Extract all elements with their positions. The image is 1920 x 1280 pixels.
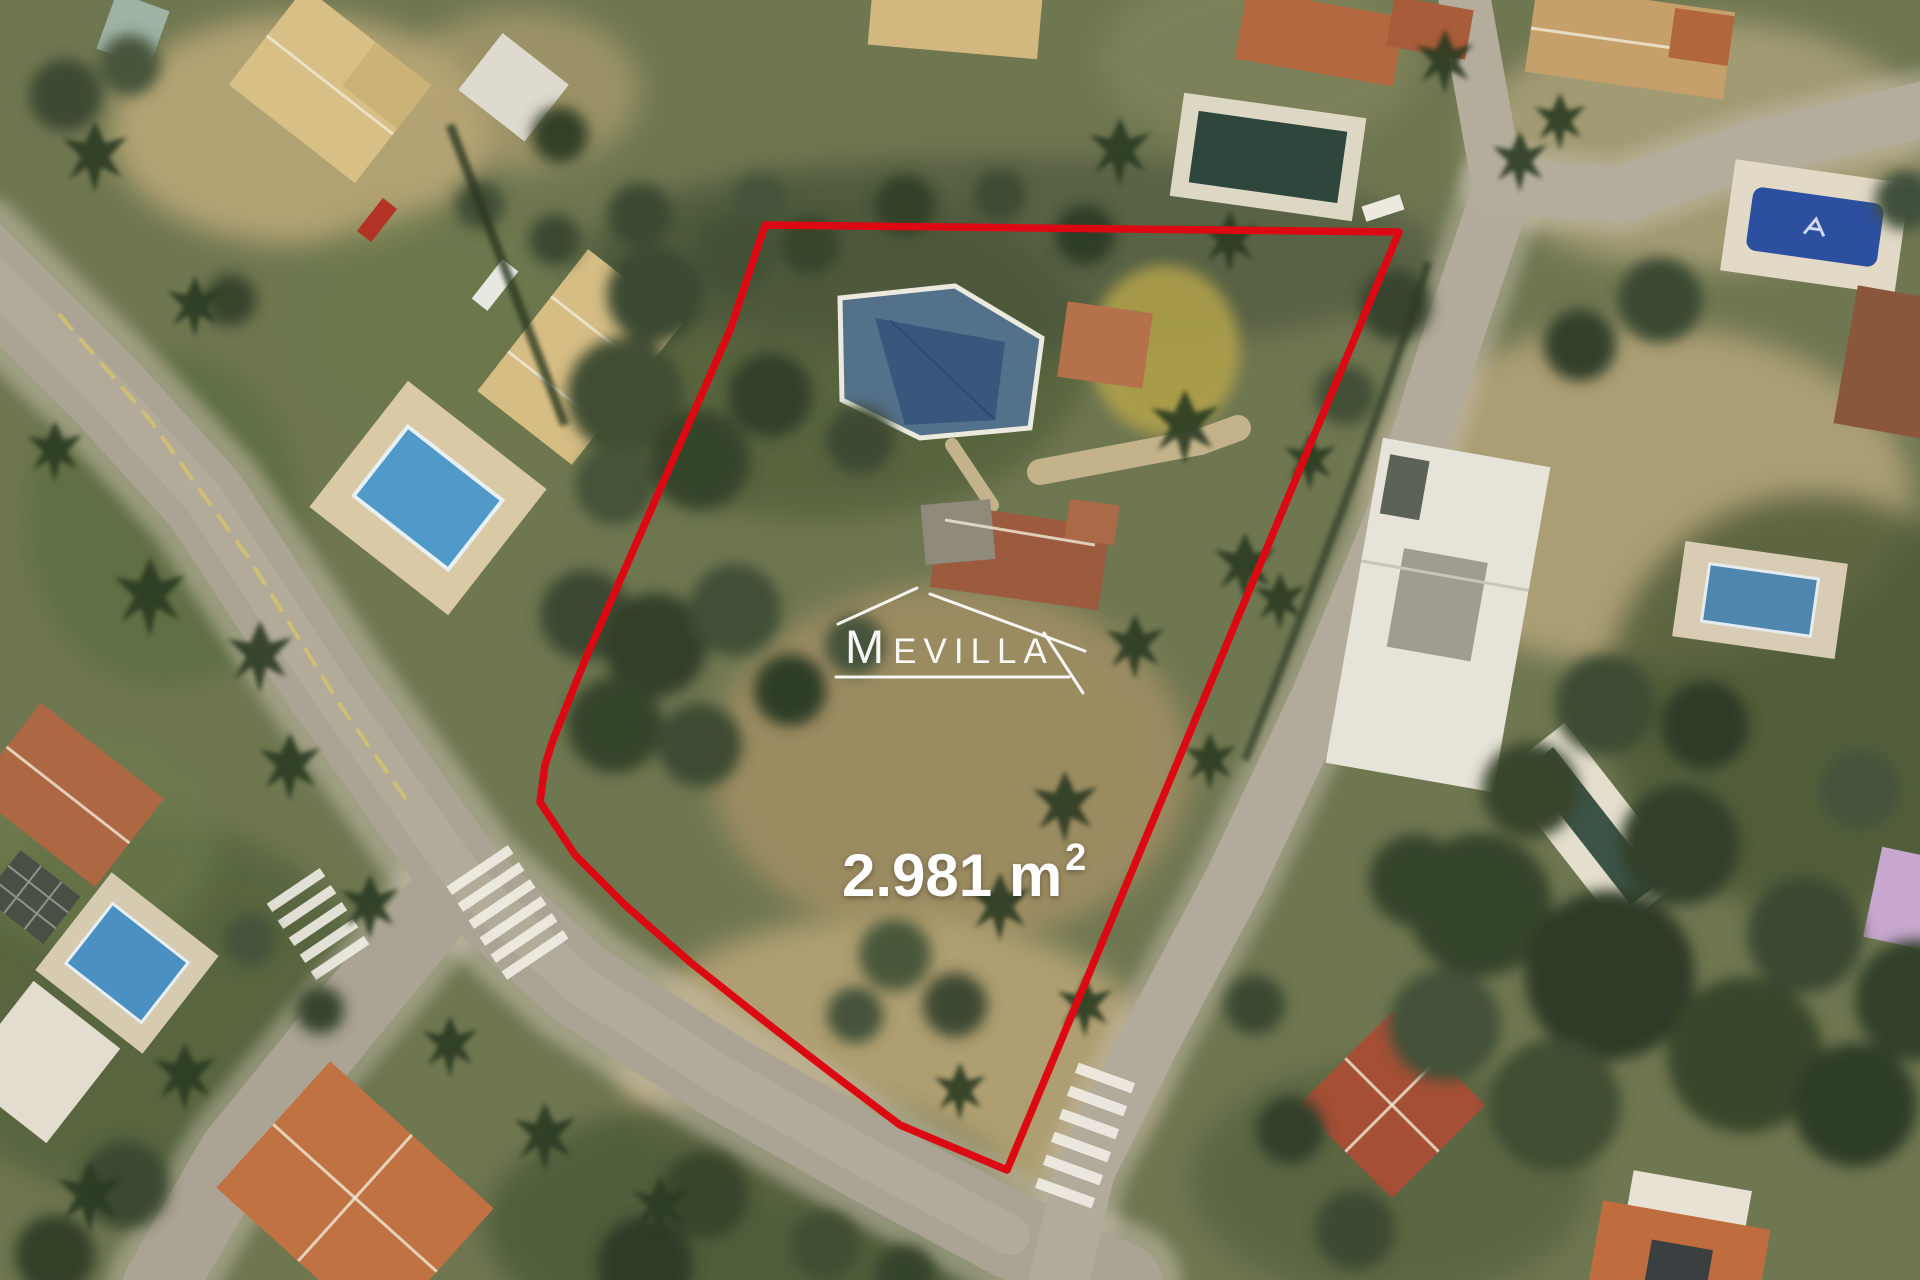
aerial-photo: MEVILLA 2.981 m2 — [0, 0, 1920, 1280]
satellite-scene: MEVILLA 2.981 m2 — [0, 0, 1920, 1280]
watermark-initial: M — [845, 620, 891, 673]
area-value: 2.981 m — [842, 842, 1062, 909]
patio-terracotta — [1057, 301, 1153, 388]
area-label: 2.981 m2 — [842, 837, 1086, 909]
area-superscript: 2 — [1065, 837, 1086, 879]
watermark-rest: EVILLA — [893, 632, 1054, 671]
